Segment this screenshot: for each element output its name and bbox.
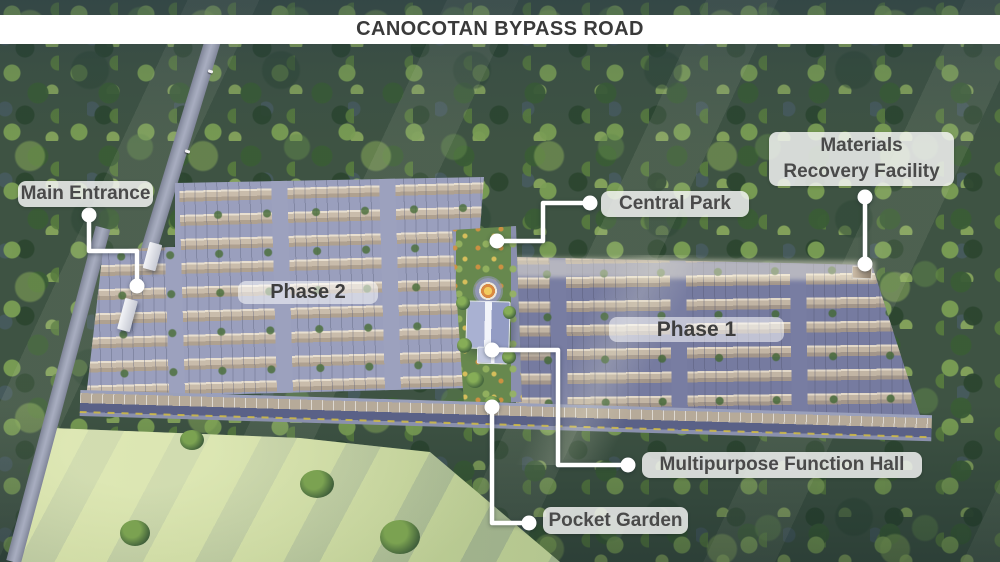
leader-dot (858, 257, 873, 272)
leader-pocket-garden (492, 407, 529, 523)
leader-dot (621, 458, 636, 473)
road-banner: CANOCOTAN BYPASS ROAD (0, 15, 1000, 44)
callout-pocket-garden: Pocket Garden (543, 507, 688, 534)
leader-multipurpose-function-hall (492, 350, 628, 465)
callout-mrf-line-2: Recovery Facility (783, 159, 939, 185)
callout-main-entrance: Main Entrance (18, 181, 153, 207)
callout-multipurpose-function-hall: Multipurpose Function Hall (642, 452, 922, 478)
leader-dot (485, 343, 500, 358)
leader-dot (485, 400, 500, 415)
leader-main-entrance (89, 215, 137, 286)
road-banner-title: CANOCOTAN BYPASS ROAD (356, 18, 644, 41)
leader-dot (490, 234, 505, 249)
area-label-phase-2: Phase 2 (238, 281, 378, 304)
leader-dot (522, 516, 537, 531)
callout-central-park: Central Park (601, 191, 749, 217)
leader-dot (82, 208, 97, 223)
area-label-phase-1: Phase 1 (609, 317, 784, 342)
aerial-site-plan: CANOCOTAN BYPASS ROAD Phase 2 Phase 1 Ma… (0, 0, 1000, 562)
callout-materials-recovery-facility: Materials Recovery Facility (769, 132, 954, 186)
callout-mrf-line-1: Materials (820, 133, 902, 159)
leader-dot (130, 279, 145, 294)
leader-central-park (497, 203, 590, 241)
leader-dot (858, 190, 873, 205)
leader-dot (583, 196, 598, 211)
